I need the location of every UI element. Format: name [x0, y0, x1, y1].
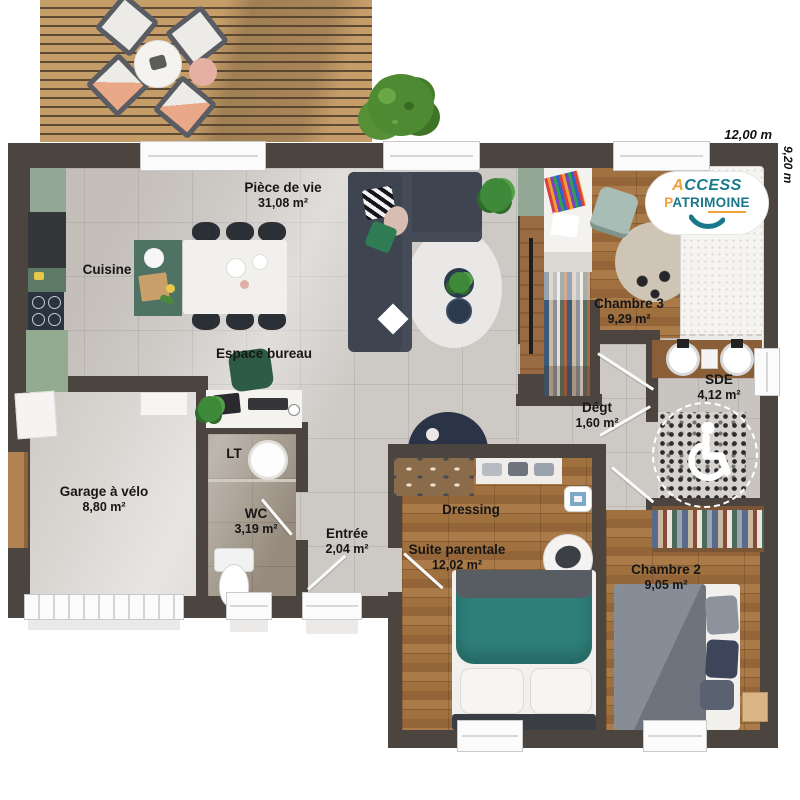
shoe-rack: [394, 458, 474, 496]
room-label-garage: Garage à vélo 8,80 m²: [60, 484, 149, 515]
lt-wc-divider: [208, 479, 296, 482]
door-step: [230, 620, 268, 632]
window: [383, 141, 480, 171]
desk-plant: [198, 396, 222, 422]
nightstand: [742, 692, 768, 722]
room-name: Chambre 3: [594, 296, 664, 311]
plate: [252, 254, 268, 270]
garage-door-step: [28, 620, 180, 630]
island-plate: [144, 248, 164, 268]
plate: [226, 258, 246, 278]
wall: [388, 592, 402, 622]
room-name: Chambre 2: [631, 562, 701, 577]
green-wall-accent: [518, 168, 546, 216]
room-name: Dressing: [442, 502, 500, 517]
chambre2-closet: [652, 506, 764, 552]
room-area: 3,19 m²: [234, 522, 277, 537]
front-door: [302, 592, 362, 620]
folded-clothes: [508, 462, 528, 476]
kitchen-cabinet: [26, 330, 68, 392]
room-label-lt: LT: [226, 446, 242, 462]
keyboard: [248, 398, 288, 410]
room-label-espace-bureau: Espace bureau: [216, 346, 312, 362]
room-area: 9,05 m²: [631, 578, 701, 593]
room-area: 12,02 m²: [409, 558, 506, 573]
open-door-leaf: [14, 391, 57, 440]
room-area: 31,08 m²: [244, 196, 321, 211]
soap-dish: [701, 349, 718, 369]
garage-door: [24, 594, 184, 620]
suite-throw: [456, 570, 592, 598]
room-label-suite-parentale: Suite parentale 12,02 m²: [409, 542, 506, 573]
wall: [388, 444, 604, 458]
wheelchair-accessibility-icon: [678, 420, 734, 486]
window: [613, 141, 710, 171]
access-patrimoine-logo: ACCESS PATRIMOINE: [646, 172, 768, 234]
wall: [296, 434, 308, 492]
bay-window: [140, 141, 266, 171]
bowl: [240, 280, 249, 289]
round-armchair: [408, 412, 488, 444]
dining-chair: [258, 222, 286, 242]
folded-clothes: [534, 463, 554, 476]
pillow: [705, 595, 740, 635]
room-name: Entrée: [326, 526, 368, 541]
dimension-height: 9,20 m: [781, 146, 795, 183]
chambre2-duvet: [614, 584, 706, 730]
room-name: WC: [245, 506, 268, 521]
door-step: [306, 620, 358, 634]
wardrobe-clothes: [544, 272, 590, 396]
green-wall-accent: [30, 168, 66, 214]
logo-underline: [708, 211, 746, 213]
tree: [368, 74, 434, 136]
room-area: 4,12 m²: [697, 388, 740, 403]
room-name: Pièce de vie: [244, 180, 321, 195]
logo-hand-icon: [689, 214, 725, 230]
room-label-wc: WC 3,19 m²: [234, 506, 277, 537]
pillow: [530, 668, 592, 714]
washing-machine: [248, 440, 288, 480]
room-label-chambre2: Chambre 2 9,05 m²: [631, 562, 701, 593]
room-label-cuisine: Cuisine: [83, 262, 132, 278]
pillow: [700, 680, 734, 710]
faucet: [677, 339, 689, 348]
window: [643, 720, 707, 752]
pouf: [446, 298, 472, 324]
room-name: Suite parentale: [409, 542, 506, 557]
pillow: [460, 668, 524, 714]
window: [754, 348, 780, 396]
room-label-chambre3: Chambre 3 9,29 m²: [594, 296, 664, 327]
coffee-table-plant: [449, 272, 470, 293]
living-plant: [480, 178, 512, 212]
room-label-entree: Entrée 2,04 m²: [325, 526, 368, 557]
closet-shelf: [544, 252, 592, 272]
room-area: 1,60 m²: [575, 416, 618, 431]
room-area: 2,04 m²: [325, 542, 368, 557]
room-label-sde: SDE 4,12 m²: [697, 372, 740, 403]
laundry-basket: [564, 486, 592, 512]
deck-side-table: [189, 58, 217, 86]
exterior-door: [226, 592, 272, 620]
folded-clothes: [482, 463, 502, 476]
mouse: [288, 404, 300, 416]
logo-word-patrimoine: PATRIMOINE: [664, 195, 750, 210]
room-name: Espace bureau: [216, 346, 312, 361]
room-label-piece-de-vie: Pièce de vie 31,08 m²: [244, 180, 321, 211]
dining-chair: [226, 222, 254, 242]
room-name: LT: [226, 446, 242, 461]
pillow: [705, 639, 739, 679]
floor-plan-canvas: Pièce de vie 31,08 m² Cuisine Espace bur…: [0, 0, 800, 800]
garage-cabinet: [140, 392, 188, 416]
dimension-width: 12,00 m: [688, 127, 772, 142]
logo-word-access: ACCESS: [672, 177, 742, 195]
dining-chair: [192, 222, 220, 242]
room-area: 8,80 m²: [60, 500, 149, 515]
lemon: [166, 284, 175, 293]
window: [457, 720, 523, 752]
kitchen-item: [34, 272, 44, 280]
room-name: SDE: [705, 372, 733, 387]
room-name: Dégt: [582, 400, 612, 415]
room-label-dressing: Dressing: [442, 502, 500, 518]
room-name: Cuisine: [83, 262, 132, 277]
room-label-degt: Dégt 1,60 m²: [575, 400, 618, 431]
kitchen-appliance: [28, 212, 66, 268]
faucet: [731, 339, 743, 348]
room-name: Garage à vélo: [60, 484, 149, 499]
room-area: 9,29 m²: [594, 312, 664, 327]
sliding-door-handle: [529, 238, 533, 354]
kitchen-cooktop: [28, 292, 64, 330]
wall: [518, 374, 546, 396]
paper: [551, 212, 580, 237]
garage-shelf: [8, 452, 28, 548]
